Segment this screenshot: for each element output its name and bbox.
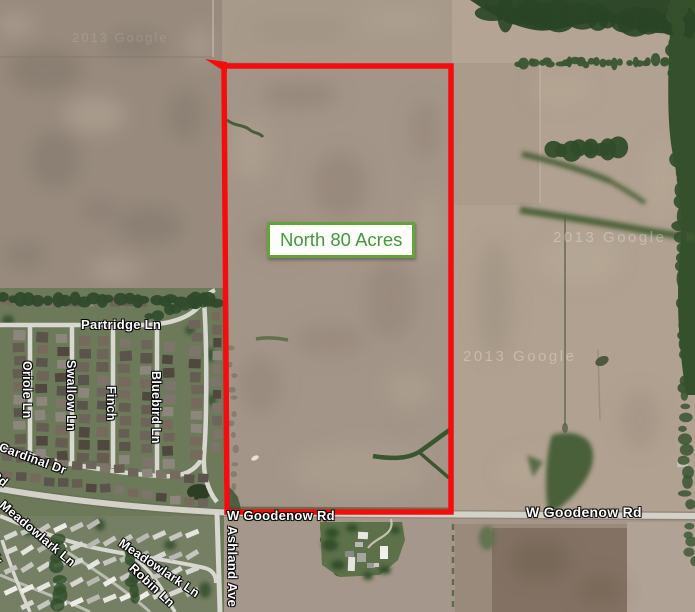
street-label-swallow-ln: Swallow Ln [64,360,78,431]
street-label-oriole-ln: Oriole Ln [20,361,34,419]
street-label-goodenow-east: W Goodenow Rd [526,504,642,520]
street-label-ashland-ave: Ashland Ave [225,526,240,607]
parcel-acreage-label: North 80 Acres [267,222,415,258]
street-label-partridge-ln: Partridge Ln [81,317,161,332]
aerial-map: North 80 Acres Partridge Ln Oriole Ln Sw… [0,0,695,612]
street-label-bluebird-ln: Bluebird Ln [149,371,163,444]
satellite-canvas [0,0,695,612]
imagery-watermark-3: 2013 Google [463,348,576,365]
street-label-goodenow-west: W Goodenow Rd [227,508,335,523]
imagery-watermark-1: 2013 Google [72,30,168,45]
imagery-watermark-2: 2013 Google [553,229,666,246]
street-label-finch: Finch [104,386,118,421]
